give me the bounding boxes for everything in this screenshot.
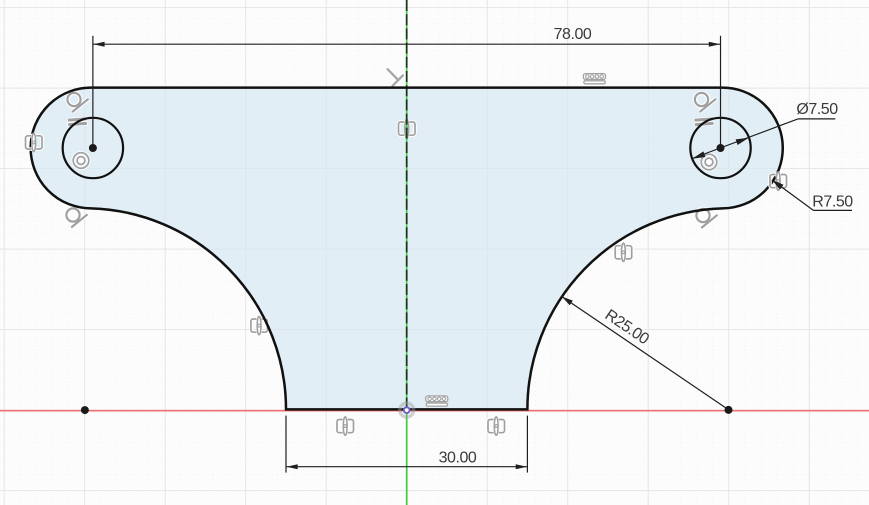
svg-text:Ø7.50: Ø7.50: [796, 101, 838, 118]
svg-text:78.00: 78.00: [554, 26, 592, 43]
svg-text:R7.50: R7.50: [812, 193, 853, 210]
svg-text:30.00: 30.00: [439, 449, 477, 466]
